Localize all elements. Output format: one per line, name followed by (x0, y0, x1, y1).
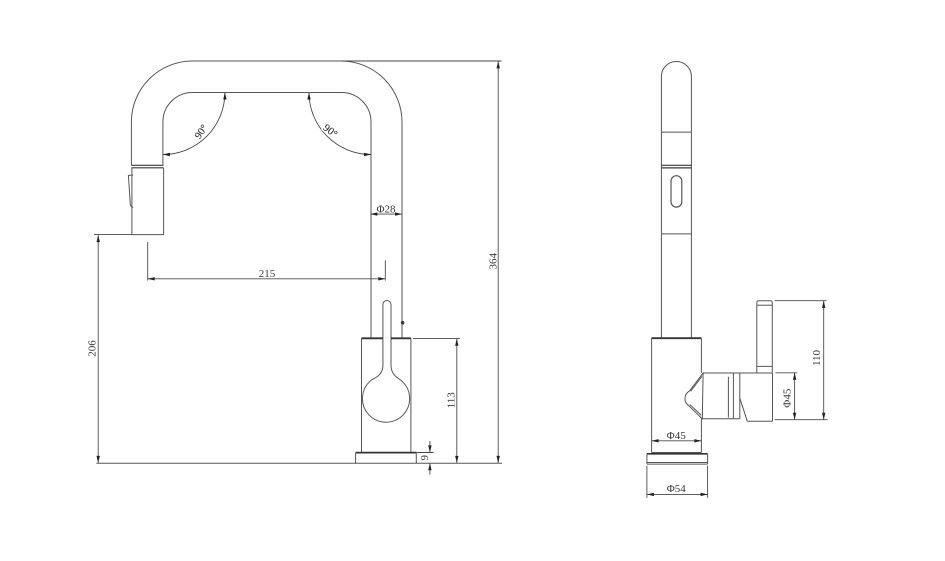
svg-text:215: 215 (259, 268, 276, 280)
svg-text:Φ28: Φ28 (376, 204, 396, 216)
svg-text:364: 364 (488, 253, 500, 270)
svg-text:9: 9 (419, 455, 431, 461)
svg-text:110: 110 (811, 349, 823, 366)
svg-text:90°: 90° (193, 123, 210, 141)
svg-text:206: 206 (87, 340, 99, 357)
svg-text:Φ54: Φ54 (667, 483, 687, 495)
svg-text:Φ45: Φ45 (782, 388, 794, 408)
svg-text:90°: 90° (321, 123, 339, 141)
svg-text:113: 113 (446, 392, 458, 409)
svg-text:Φ45: Φ45 (667, 430, 687, 442)
